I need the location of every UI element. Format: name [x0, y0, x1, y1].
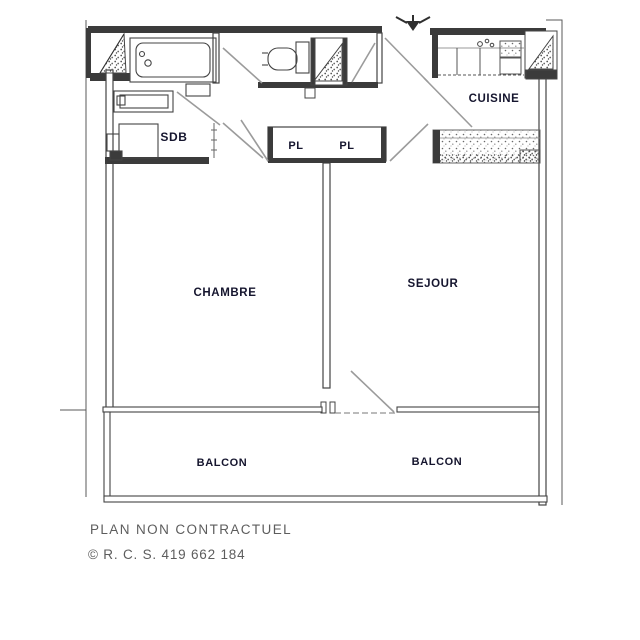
toilet	[262, 42, 309, 73]
door-leaf	[211, 123, 217, 158]
room-label-sejour: SEJOUR	[408, 278, 459, 290]
column-top-right	[525, 31, 557, 79]
room-label-sdb: SDB	[160, 130, 187, 144]
door-swing-entrance	[385, 38, 428, 82]
bath-step	[186, 84, 210, 96]
door-swing-sdb	[223, 123, 263, 158]
faucet-icon	[478, 39, 494, 47]
door-swing-wc	[223, 48, 262, 83]
kitchen-sink-counter	[438, 39, 524, 75]
footer-registration: © R. C. S. 419 662 184	[88, 547, 245, 562]
window-wall-right	[397, 407, 539, 412]
room-label-pl-right: PL	[339, 140, 354, 152]
balcony-left-rail	[104, 412, 110, 497]
central-wall-stub-right	[330, 402, 335, 413]
room-label-pl-left: PL	[288, 140, 303, 152]
central-wall	[323, 163, 330, 388]
wardrobe-pl	[268, 127, 386, 163]
window-wall-left	[103, 407, 322, 412]
room-label-chambre: CHAMBRE	[194, 287, 257, 299]
door-swing-kitchen	[424, 78, 472, 127]
balcony-bottom-rail	[104, 496, 547, 502]
door-swing-hall	[177, 92, 220, 125]
footer: PLAN NON CONTRACTUEL © R. C. S. 419 662 …	[88, 522, 292, 562]
door-swing-closet	[352, 43, 375, 82]
kitchen-left-wall	[432, 35, 438, 78]
top-wall-middle	[311, 26, 382, 33]
left-wall-top-segment	[86, 28, 91, 78]
washbasin	[114, 91, 173, 112]
floor-plan-drawing: SDB CUISINE PL PL CHAMBRE SEJOUR BALCON …	[0, 0, 640, 640]
room-label-balcon-right: BALCON	[412, 456, 463, 468]
footer-disclaimer: PLAN NON CONTRACTUEL	[90, 522, 292, 537]
top-wall-left	[88, 26, 311, 33]
left-wall	[106, 70, 113, 410]
room-label-cuisine: CUISINE	[469, 93, 520, 105]
washing-machine	[107, 124, 158, 160]
bathtub	[130, 38, 216, 82]
balcony	[104, 412, 547, 502]
north-arrow-icon	[396, 15, 430, 31]
entry-closet-wall	[377, 33, 382, 83]
kitchen-lower-counter	[433, 130, 540, 163]
door-swing-balcony	[351, 371, 394, 412]
column-middle	[305, 38, 347, 98]
door-swing-sejour	[390, 124, 428, 161]
door-swing-chambre	[241, 120, 268, 161]
floor-plan-page: SDB CUISINE PL PL CHAMBRE SEJOUR BALCON …	[0, 0, 640, 640]
room-label-balcon-left: BALCON	[197, 457, 248, 469]
